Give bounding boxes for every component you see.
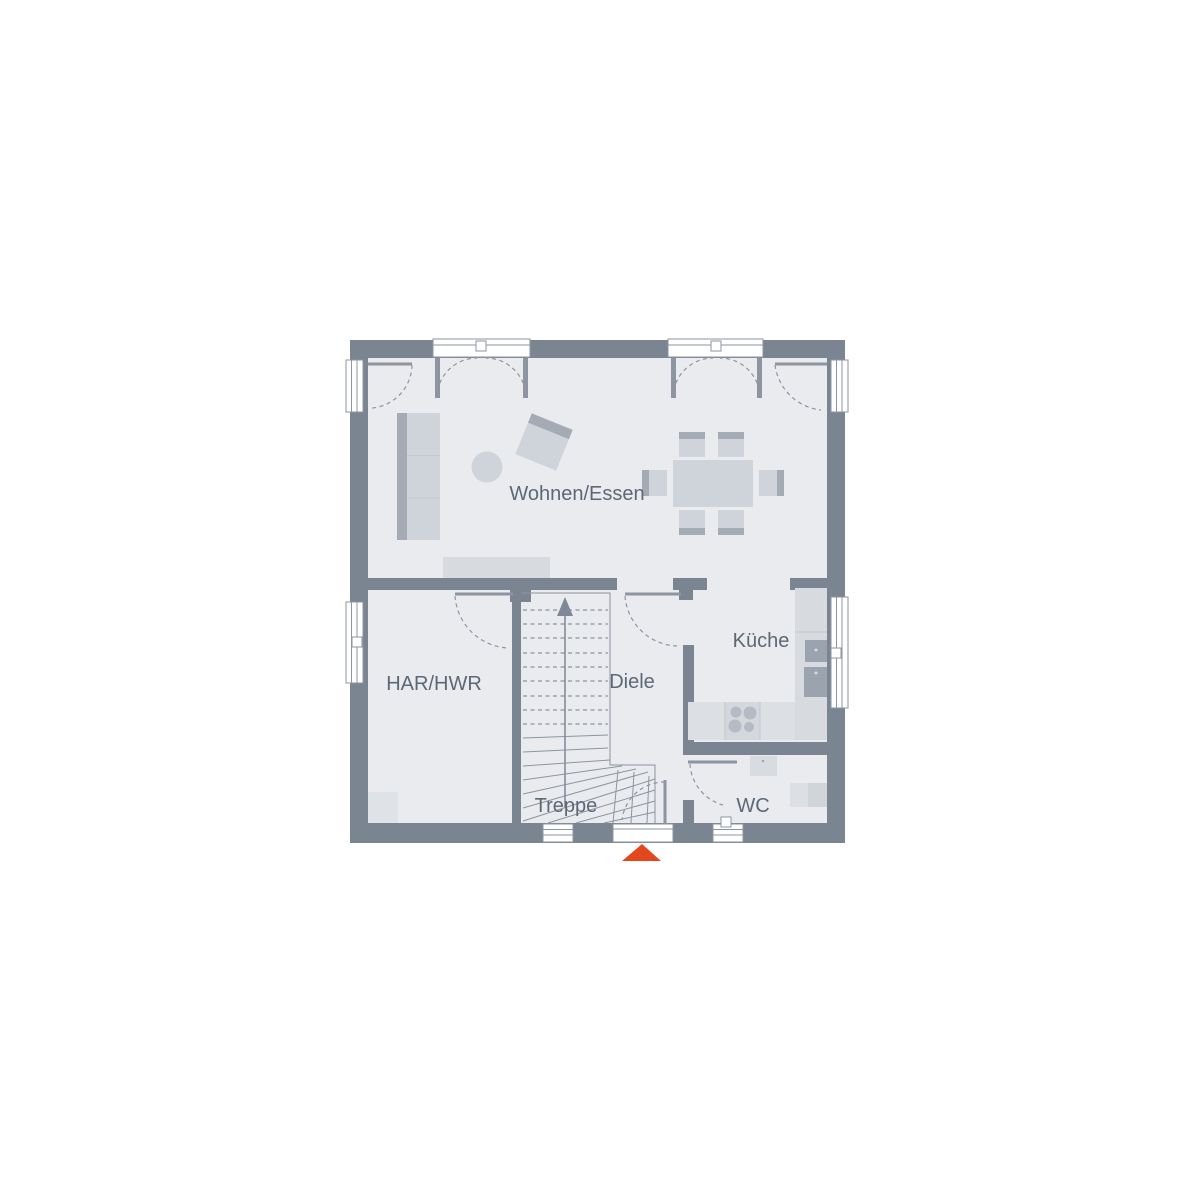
floor-plan-page: Wohnen/Essen HAR/HWR Diele Küche Treppe … bbox=[0, 0, 1200, 1200]
french-door-left-leaf-b bbox=[523, 358, 528, 398]
room-label-wc: WC bbox=[736, 795, 769, 817]
french-door-left-leaf-a bbox=[435, 358, 440, 398]
oven-dot bbox=[815, 649, 818, 652]
entrance-threshold bbox=[613, 824, 673, 842]
dining-chair bbox=[718, 432, 744, 457]
room-label-diele: Diele bbox=[609, 671, 655, 693]
sofa-seat bbox=[407, 413, 440, 540]
terrace-window-right-icon bbox=[831, 360, 848, 412]
wall-stair-side bbox=[512, 590, 521, 823]
chair-back bbox=[718, 432, 744, 439]
wall-diele-tab bbox=[679, 578, 693, 600]
french-door-left-knob bbox=[476, 341, 486, 351]
room-label-wohnen-essen: Wohnen/Essen bbox=[509, 483, 644, 505]
toilet-dot bbox=[762, 760, 764, 762]
room-label-treppe: Treppe bbox=[535, 795, 598, 817]
dining-chair bbox=[642, 470, 667, 496]
cooktop-panel bbox=[725, 702, 760, 740]
har-appliance bbox=[368, 792, 398, 823]
toilet-icon bbox=[750, 756, 777, 776]
dining-chair bbox=[679, 432, 705, 457]
terrace-window-left-icon bbox=[346, 360, 363, 412]
french-door-right-leaf-b bbox=[757, 358, 762, 398]
entrance-marker-icon bbox=[622, 844, 661, 861]
floor-plan-drawing: Wohnen/Essen HAR/HWR Diele Küche Treppe … bbox=[0, 0, 1200, 1200]
burner bbox=[744, 707, 757, 720]
room-label-har-hwr: HAR/HWR bbox=[386, 673, 482, 695]
washbasin-bowl bbox=[808, 783, 827, 807]
dining-chair bbox=[679, 510, 705, 535]
wall-living-lower bbox=[368, 578, 617, 590]
chair-back bbox=[679, 528, 705, 535]
terrace-window-left-glass bbox=[346, 360, 363, 412]
dining-chair bbox=[759, 470, 784, 496]
chair-back bbox=[679, 432, 705, 439]
room-label-kueche: Küche bbox=[733, 630, 790, 652]
chair-back bbox=[777, 470, 784, 496]
sofa bbox=[397, 413, 440, 540]
refrigerator-dot bbox=[815, 672, 818, 675]
kueche-window-icon bbox=[831, 597, 848, 708]
chair-back bbox=[718, 528, 744, 535]
dining-table bbox=[673, 460, 753, 507]
burner bbox=[729, 720, 742, 733]
burner bbox=[744, 722, 754, 732]
terrace-window-right-glass bbox=[831, 360, 848, 412]
har-window-icon bbox=[346, 602, 363, 683]
wc-window-handle bbox=[721, 817, 731, 827]
har-window-handle bbox=[352, 637, 362, 647]
treppe-window-glass bbox=[543, 824, 573, 842]
refrigerator-icon bbox=[804, 667, 827, 697]
french-door-right-knob bbox=[711, 341, 721, 351]
coffee-table bbox=[472, 452, 503, 483]
french-door-right-leaf-a bbox=[671, 358, 676, 398]
sideboard bbox=[443, 557, 550, 578]
kitchen-tall-units bbox=[795, 588, 827, 740]
burner bbox=[731, 707, 742, 718]
dining-chair bbox=[718, 510, 744, 535]
sofa-backrest bbox=[397, 413, 407, 540]
wall-kueche-wc bbox=[683, 742, 827, 755]
wall-wc-left bbox=[683, 800, 694, 823]
treppe-window-icon bbox=[543, 824, 573, 842]
kueche-window-handle bbox=[831, 648, 841, 658]
